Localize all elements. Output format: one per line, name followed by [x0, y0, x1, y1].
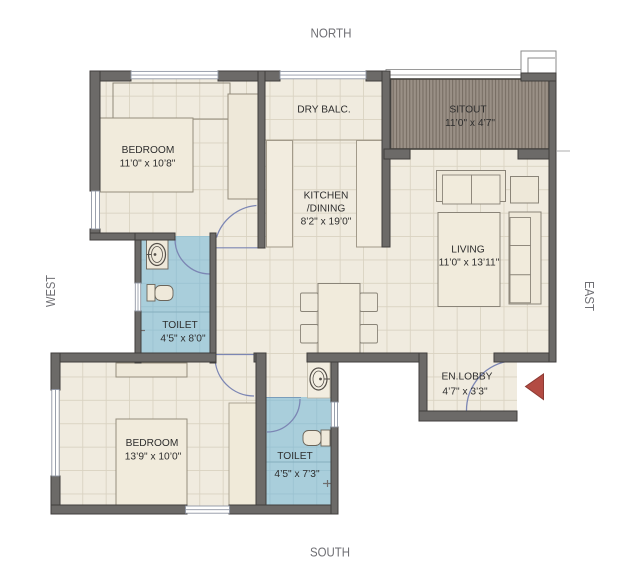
- svg-text:/DINING: /DINING: [307, 204, 346, 215]
- svg-text:4’7" x 3’3": 4’7" x 3’3": [442, 387, 488, 398]
- svg-text:BEDROOM: BEDROOM: [122, 145, 175, 156]
- svg-text:LIVING: LIVING: [451, 245, 484, 256]
- svg-text:8’2" x 19’0": 8’2" x 19’0": [301, 217, 352, 228]
- svg-text:13’9" x 10’0": 13’9" x 10’0": [125, 452, 182, 463]
- svg-text:NORTH: NORTH: [311, 26, 352, 41]
- svg-text:TOILET: TOILET: [162, 320, 197, 331]
- svg-text:11’0" x 13’11": 11’0" x 13’11": [439, 258, 500, 269]
- svg-text:TOILET: TOILET: [277, 451, 312, 462]
- svg-text:BEDROOM: BEDROOM: [126, 438, 179, 449]
- svg-text:EN.LOBBY: EN.LOBBY: [442, 372, 493, 383]
- svg-text:EAST: EAST: [582, 281, 597, 311]
- svg-text:KITCHEN: KITCHEN: [304, 191, 349, 202]
- svg-text:4’5" x 7’3": 4’5" x 7’3": [274, 469, 320, 480]
- svg-text:4’5" x 8’0": 4’5" x 8’0": [160, 334, 206, 345]
- svg-text:DRY BALC.: DRY BALC.: [297, 105, 350, 116]
- svg-text:SITOUT: SITOUT: [449, 105, 486, 116]
- svg-text:11’0" x 10’8": 11’0" x 10’8": [120, 159, 176, 170]
- svg-text:WEST: WEST: [43, 275, 58, 307]
- svg-text:11’0" x 4’7": 11’0" x 4’7": [445, 118, 495, 129]
- svg-text:SOUTH: SOUTH: [310, 545, 350, 560]
